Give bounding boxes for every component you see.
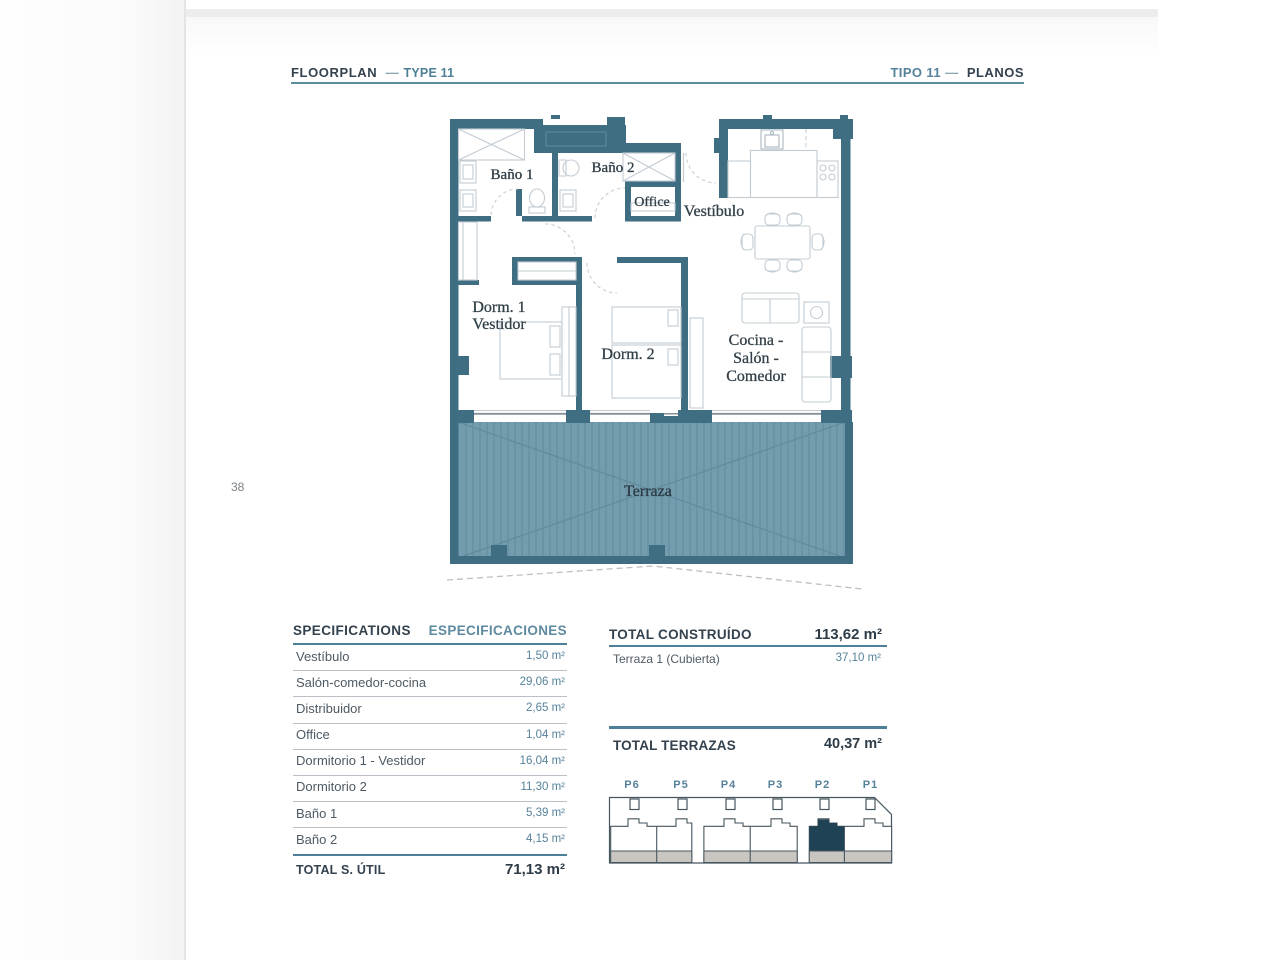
svg-text:P5: P5 [673,779,688,791]
svg-text:P2: P2 [815,779,830,791]
svg-text:P6: P6 [624,779,639,791]
svg-text:Salón -: Salón - [733,350,779,367]
svg-text:Terraza: Terraza [624,483,672,500]
svg-text:Office: Office [634,195,670,210]
svg-text:Vestíbulo: Vestíbulo [684,203,744,220]
svg-text:Dorm. 1: Dorm. 1 [472,299,525,316]
svg-text:Comedor: Comedor [726,368,786,385]
svg-text:Vestidor: Vestidor [472,316,526,333]
svg-text:Baño 1: Baño 1 [491,167,534,183]
svg-text:Baño 2: Baño 2 [592,160,635,176]
svg-text:Cocina -: Cocina - [729,332,784,349]
svg-text:Dorm. 2: Dorm. 2 [601,346,654,363]
svg-text:P3: P3 [768,779,783,791]
svg-text:P4: P4 [721,779,736,791]
svg-text:P1: P1 [863,779,878,791]
